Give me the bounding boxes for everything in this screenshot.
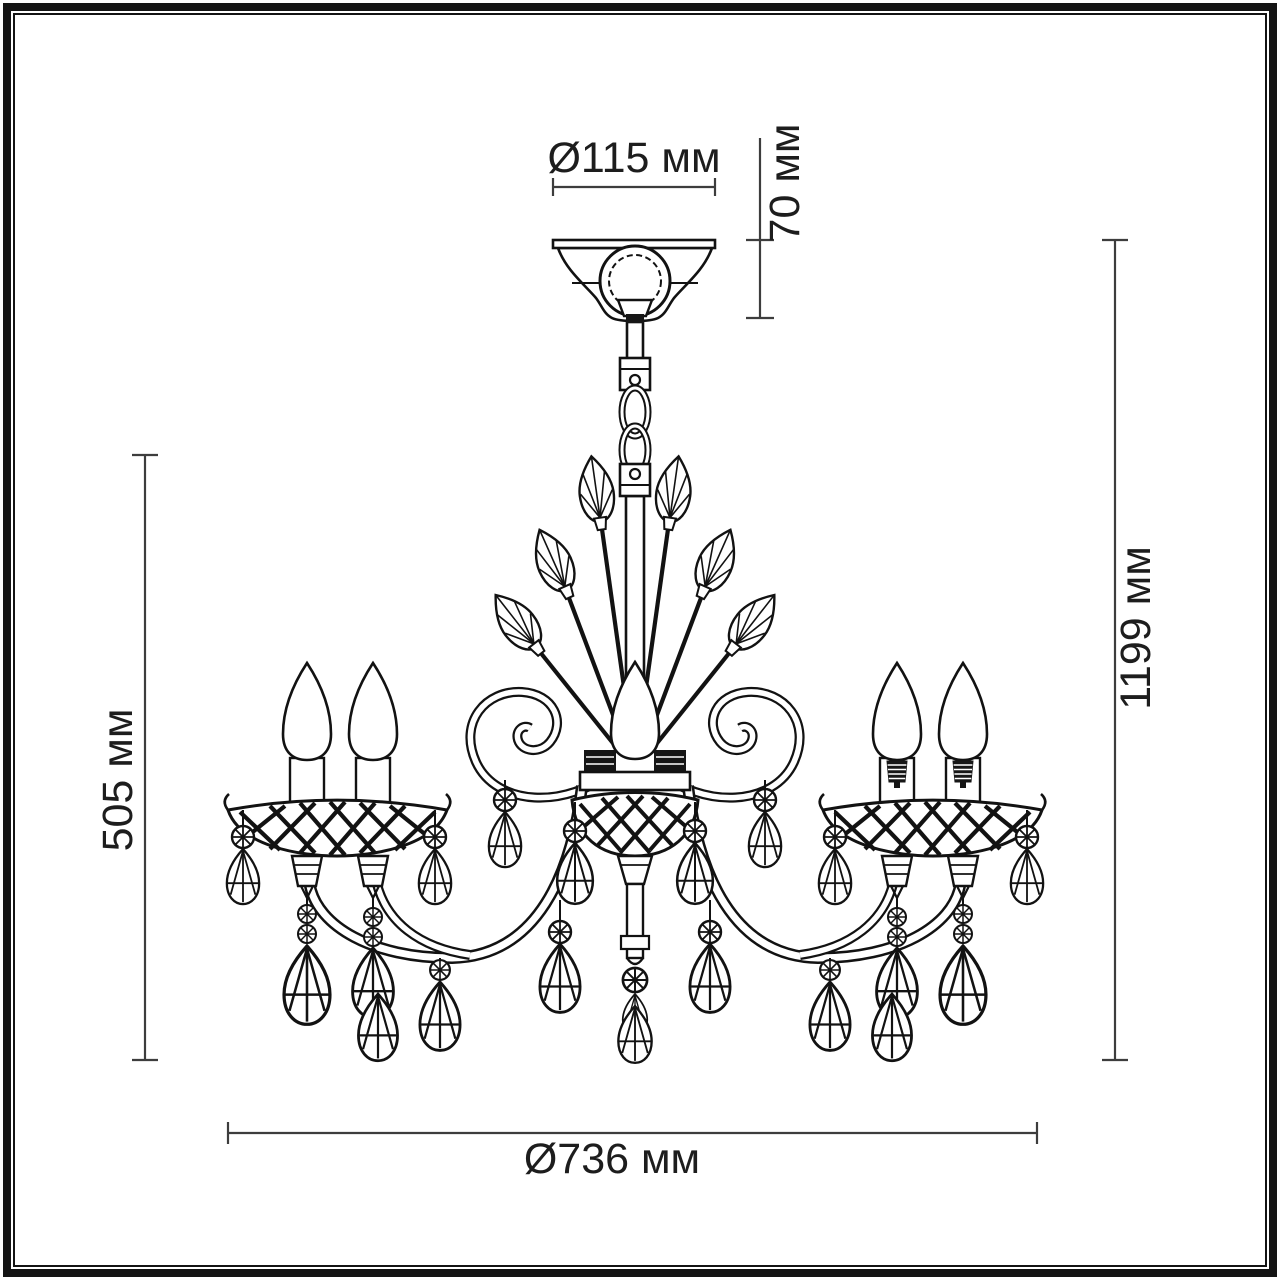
bulb-bases-right [887, 761, 973, 788]
label-canopy-height: 70 мм [761, 124, 809, 243]
chain-suspension [620, 322, 650, 496]
label-total-height: 1199 мм [1112, 546, 1160, 710]
ceiling-canopy [553, 240, 715, 323]
center-candle [611, 662, 659, 759]
label-total-diameter: Ø736 мм [524, 1135, 700, 1183]
drawing-page: Ø115 мм 70 мм 1199 мм 505 мм Ø736 мм [0, 0, 1280, 1280]
label-canopy-diameter: Ø115 мм [547, 134, 720, 182]
chandelier-drawing [225, 240, 1046, 1063]
chandelier-dimension-drawing: Ø115 мм 70 мм 1199 мм 505 мм Ø736 мм [0, 0, 1280, 1280]
label-body-height: 505 мм [94, 709, 142, 852]
